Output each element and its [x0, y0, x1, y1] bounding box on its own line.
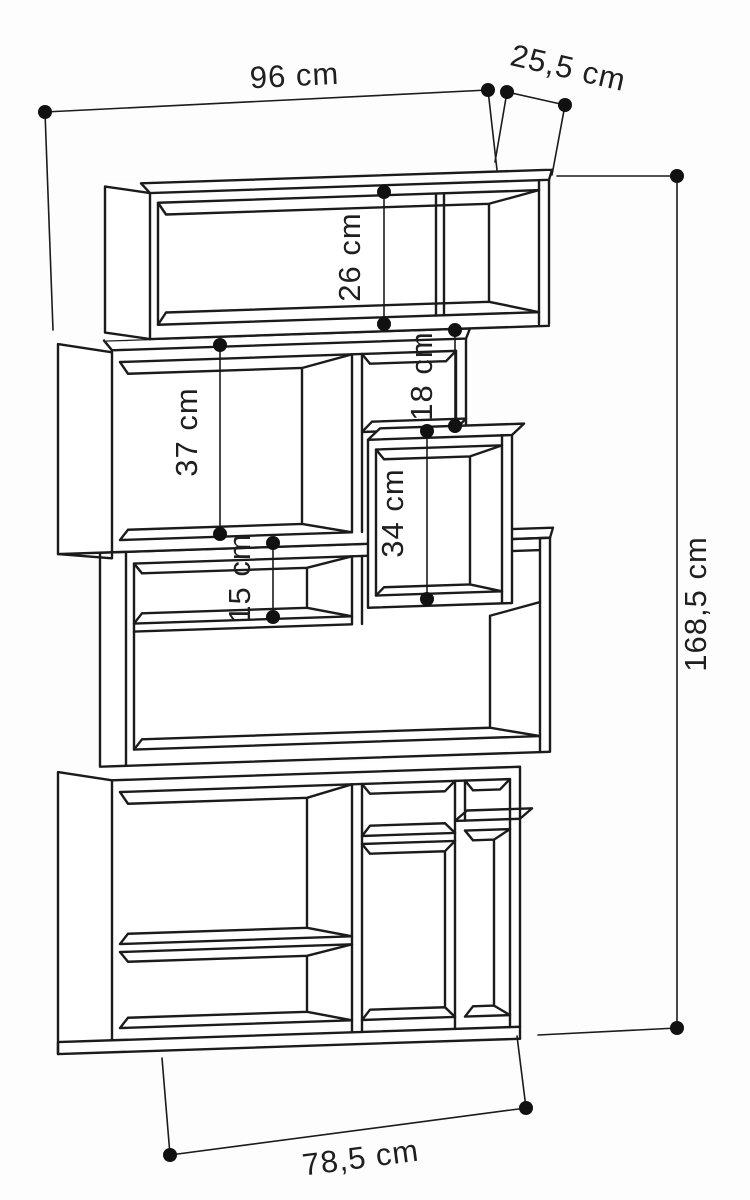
- dim-endpoint-dot: [420, 592, 434, 606]
- dim-endpoint-dot: [481, 83, 495, 97]
- dim-label-overall-width: 96 cm: [249, 56, 340, 96]
- dim-label-upper-middle-compartment: 18 cm: [404, 331, 439, 420]
- bookcase-drawing: 96 cm 25,5 cm 168,5 cm 26 cm 37 cm 18 cm: [0, 0, 750, 1200]
- dim-endpoint-dot: [519, 1101, 533, 1115]
- bookcase: [58, 168, 553, 1054]
- dim-label-upper-left-compartment: 37 cm: [169, 387, 204, 476]
- dim-endpoint-dot: [670, 169, 684, 183]
- dim-endpoint-dot: [266, 536, 280, 550]
- dim-label-middle-left-compartment: 15 cm: [222, 533, 257, 622]
- dimension-top-depth: 25,5 cm: [495, 38, 629, 175]
- dim-label-top-depth: 25,5 cm: [507, 38, 629, 98]
- dim-label-overall-height: 168,5 cm: [678, 536, 713, 672]
- dim-endpoint-dot: [448, 419, 462, 433]
- dim-endpoint-dot: [670, 1021, 684, 1035]
- dimension-overall-height: 168,5 cm: [538, 169, 713, 1035]
- dim-label-middle-right-compartment: 34 cm: [375, 468, 410, 557]
- tier4-bottom-box: [58, 756, 532, 1054]
- dim-label-top-compartment: 26 cm: [332, 212, 367, 301]
- dimension-base-width: 78,5 cm: [162, 1036, 533, 1183]
- tier1-top-box: [105, 168, 552, 341]
- dim-endpoint-dot: [377, 185, 391, 199]
- dim-endpoint-dot: [163, 1148, 177, 1162]
- dim-endpoint-dot: [448, 323, 462, 337]
- furniture-dimension-diagram: 96 cm 25,5 cm 168,5 cm 26 cm 37 cm 18 cm: [0, 0, 750, 1200]
- dim-endpoint-dot: [38, 105, 52, 119]
- dim-endpoint-dot: [420, 424, 434, 438]
- dim-label-base-width: 78,5 cm: [300, 1133, 421, 1183]
- dim-endpoint-dot: [500, 85, 514, 99]
- dim-endpoint-dot: [377, 317, 391, 331]
- dim-endpoint-dot: [266, 610, 280, 624]
- dim-endpoint-dot: [558, 98, 572, 112]
- dim-endpoint-dot: [213, 338, 227, 352]
